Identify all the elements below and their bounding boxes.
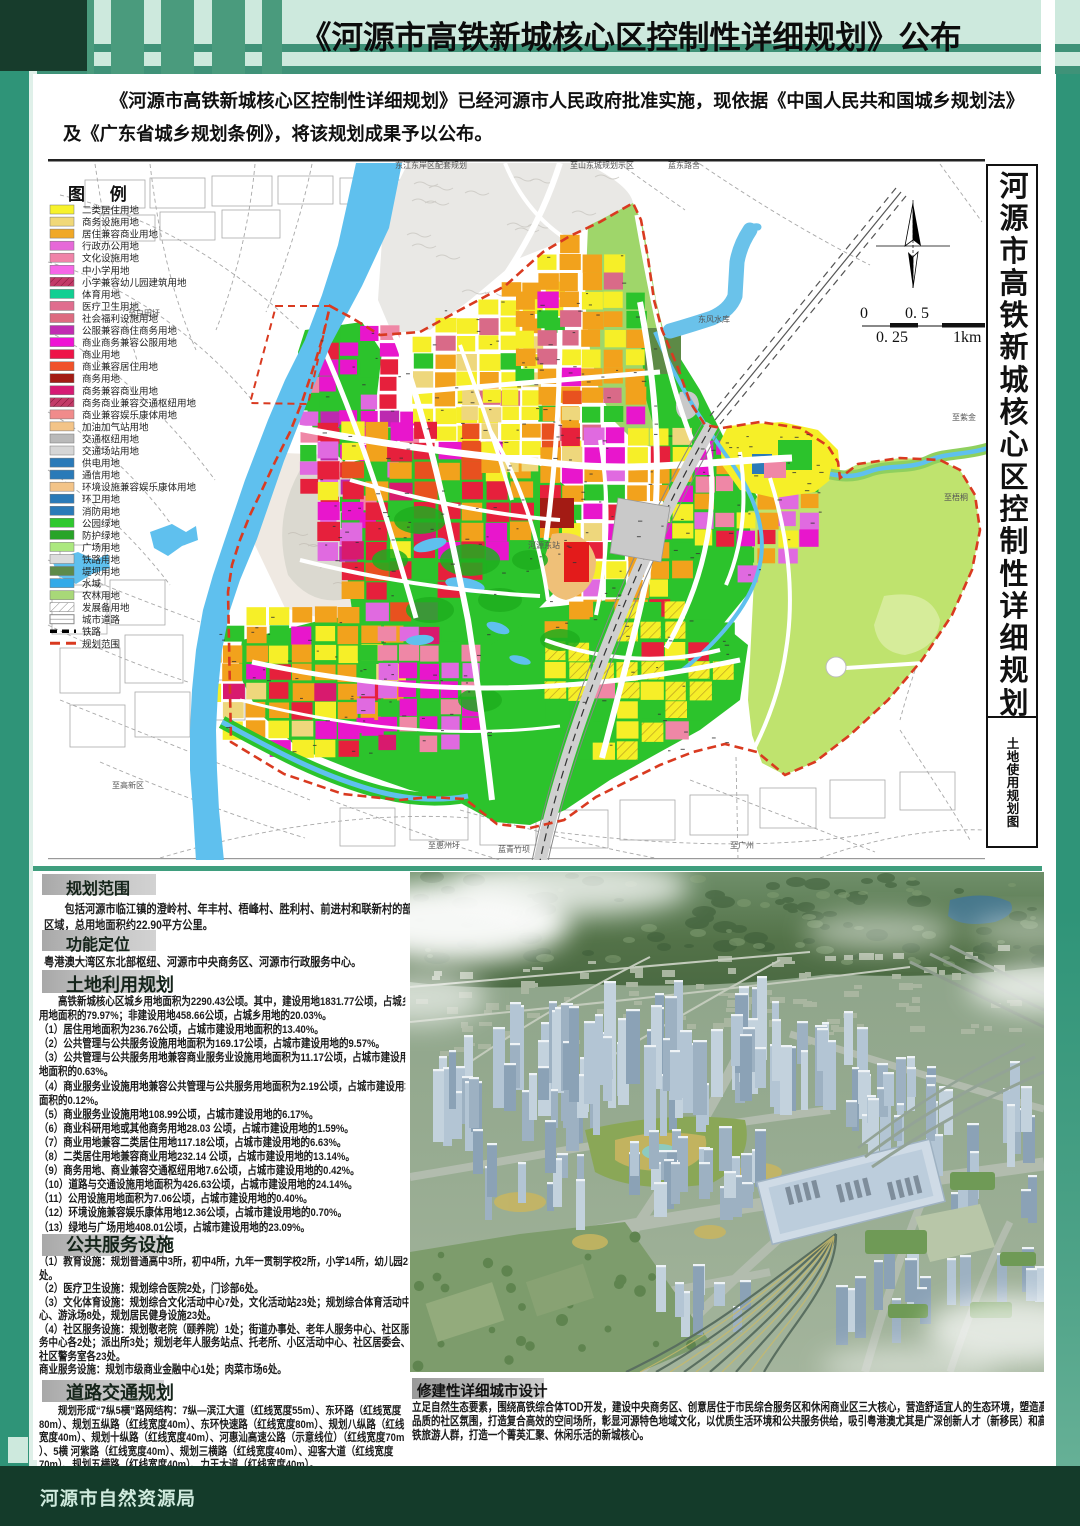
svg-text:环卫用地: 环卫用地: [82, 494, 121, 506]
svg-text:社会福利设施用地: 社会福利设施用地: [82, 313, 159, 325]
svg-text:体育用地: 体育用地: [82, 289, 121, 301]
svg-text:居住兼容商业用地: 居住兼容商业用地: [82, 229, 159, 241]
svg-text:水域: 水域: [82, 578, 102, 590]
svg-text:0. 5: 0. 5: [905, 305, 929, 322]
svg-text:至梧桐: 至梧桐: [944, 492, 968, 502]
svg-text:防护绿地: 防护绿地: [82, 530, 121, 542]
svg-text:通信用地: 通信用地: [82, 470, 121, 482]
svg-text:供电用地: 供电用地: [82, 458, 121, 470]
svg-text:交通场站用地: 交通场站用地: [82, 446, 140, 458]
svg-text:东江东岸区配套规划: 东江东岸区配套规划: [395, 160, 467, 170]
svg-text:商业商务兼容公服用地: 商业商务兼容公服用地: [82, 337, 178, 349]
svg-text:蓝青竹坝: 蓝青竹坝: [498, 844, 530, 854]
svg-text:小学兼容幼儿园建筑用地: 小学兼容幼儿园建筑用地: [82, 277, 187, 289]
svg-text:至紫金: 至紫金: [952, 412, 976, 422]
svg-text:商务兼容商业用地: 商务兼容商业用地: [82, 385, 159, 397]
svg-text:商业兼容居住用地: 商业兼容居住用地: [82, 361, 159, 373]
svg-text:0: 0: [860, 305, 868, 322]
svg-text:二类居住用地: 二类居住用地: [82, 205, 140, 217]
svg-text:堤坝用地: 堤坝用地: [82, 566, 121, 578]
svg-text:商务用地: 商务用地: [82, 373, 121, 385]
svg-text:广场用地: 广场用地: [82, 542, 121, 554]
svg-text:文化设施用地: 文化设施用地: [82, 253, 140, 265]
svg-text:公服兼容商住商务用地: 公服兼容商住商务用地: [82, 325, 178, 337]
svg-text:加油加气站用地: 加油加气站用地: [82, 421, 149, 433]
svg-text:商务设施用地: 商务设施用地: [82, 217, 140, 229]
svg-text:至广州: 至广州: [730, 840, 754, 850]
svg-text:医疗卫生用地: 医疗卫生用地: [82, 301, 140, 313]
svg-text:蓝东路舍: 蓝东路舍: [668, 160, 700, 170]
svg-text:至惠州圩: 至惠州圩: [428, 840, 460, 850]
svg-text:图 例: 图 例: [68, 184, 137, 204]
svg-text:0. 25: 0. 25: [876, 329, 908, 346]
svg-text:河源东站: 河源东站: [528, 540, 560, 550]
svg-text:农林用地: 农林用地: [82, 590, 121, 602]
svg-text:城市道路: 城市道路: [82, 614, 121, 626]
svg-text:规划范围: 规划范围: [82, 638, 120, 650]
svg-text:铁路用地: 铁路用地: [82, 554, 121, 566]
svg-text:商业用地: 商业用地: [82, 349, 121, 361]
svg-text:1km: 1km: [953, 329, 982, 346]
svg-text:铁路: 铁路: [82, 626, 102, 638]
svg-text:中小学用地: 中小学用地: [82, 265, 130, 277]
svg-text:行政办公用地: 行政办公用地: [82, 241, 140, 253]
svg-text:东风水库: 东风水库: [698, 314, 730, 324]
svg-text:至山东城规划示区: 至山东城规划示区: [570, 160, 634, 170]
svg-text:商业兼容娱乐康体用地: 商业兼容娱乐康体用地: [82, 409, 178, 421]
svg-text:消防用地: 消防用地: [82, 506, 121, 518]
svg-text:至高新区: 至高新区: [112, 780, 144, 790]
svg-text:环境设施兼容娱乐康体用地: 环境设施兼容娱乐康体用地: [82, 482, 197, 494]
svg-text:公园绿地: 公园绿地: [82, 518, 121, 530]
svg-text:发展备用地: 发展备用地: [82, 602, 130, 614]
svg-text:交通枢纽用地: 交通枢纽用地: [82, 434, 140, 446]
svg-text:商务商业兼容交通枢纽用地: 商务商业兼容交通枢纽用地: [82, 397, 197, 409]
